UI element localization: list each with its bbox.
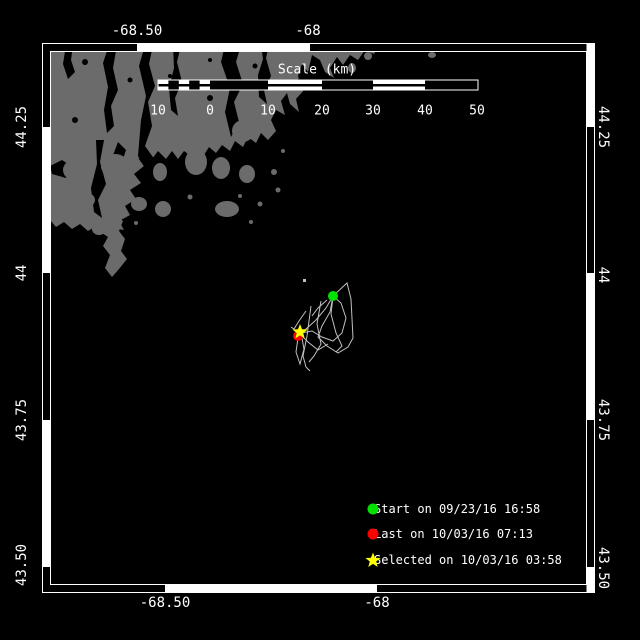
last-dot-icon bbox=[364, 525, 382, 543]
scale-tick-label: 20 bbox=[314, 105, 330, 118]
scale-tick-label: 40 bbox=[417, 105, 433, 118]
bottom-axis-label: -68 bbox=[364, 596, 389, 610]
right-axis-label: 43.75 bbox=[596, 399, 610, 441]
legend-item-start: Start on 09/23/16 16:58 bbox=[364, 500, 540, 518]
scale-tick-label: 30 bbox=[365, 105, 381, 118]
map-canvas[interactable] bbox=[0, 0, 640, 640]
selected-star-icon bbox=[364, 551, 382, 569]
scale-tick-label: 10 bbox=[260, 105, 276, 118]
left-axis-label: 43.75 bbox=[15, 399, 29, 441]
bottom-axis-label: -68.50 bbox=[140, 596, 191, 610]
left-axis-label: 44.25 bbox=[15, 106, 29, 148]
map-viewport: -68.50 -68 -68.50 -68 44.25 44 43.75 43.… bbox=[0, 0, 640, 640]
start-dot-icon bbox=[364, 500, 382, 518]
top-axis-label: -68.50 bbox=[112, 24, 163, 38]
scale-tick-label: 0 bbox=[206, 105, 214, 118]
right-axis-label: 44.25 bbox=[596, 106, 610, 148]
top-axis-label: -68 bbox=[295, 24, 320, 38]
legend-label: Selected on 10/03/16 03:58 bbox=[374, 553, 562, 567]
legend-item-selected: Selected on 10/03/16 03:58 bbox=[364, 551, 562, 569]
legend-label: Last on 10/03/16 07:13 bbox=[374, 527, 533, 541]
legend-item-last: Last on 10/03/16 07:13 bbox=[364, 525, 533, 543]
left-axis-label: 43.50 bbox=[15, 544, 29, 586]
scale-bar bbox=[158, 80, 478, 90]
scale-bar-title: Scale (km) bbox=[278, 64, 356, 77]
legend-label: Start on 09/23/16 16:58 bbox=[374, 502, 540, 516]
right-axis-label: 44 bbox=[596, 267, 610, 284]
start-position-marker[interactable] bbox=[328, 291, 338, 301]
right-axis-label: 43.50 bbox=[596, 547, 610, 589]
scale-tick-label: 50 bbox=[469, 105, 485, 118]
scale-tick-label: 10 bbox=[150, 105, 166, 118]
left-axis-label: 44 bbox=[15, 265, 29, 282]
